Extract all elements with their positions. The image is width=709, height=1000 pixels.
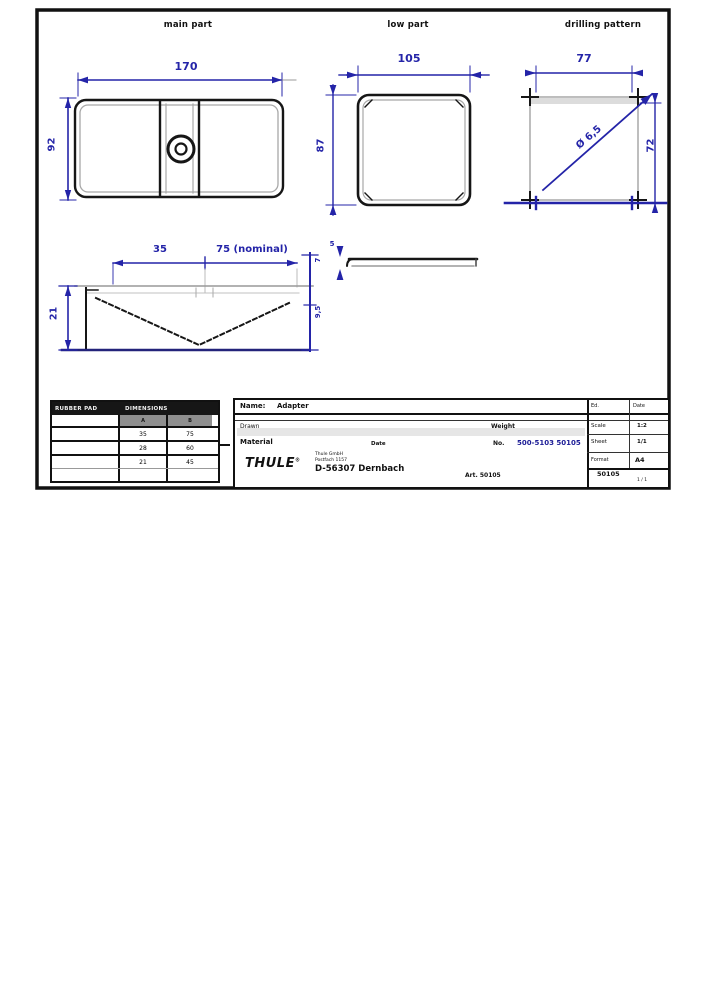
table-row <box>52 468 218 481</box>
view-main-part <box>60 73 296 200</box>
dim-pattern-width: 77 <box>566 52 602 65</box>
dim-main-height: 92 <box>47 131 58 159</box>
company-bold: D-56307 Dernbach <box>315 464 404 474</box>
table-cell: 35 <box>118 428 166 440</box>
table-cell <box>118 469 166 481</box>
table-cell <box>166 469 212 481</box>
table-cell: 28 <box>118 442 166 454</box>
material-label: Material <box>240 438 273 446</box>
date-label: Date <box>633 403 645 409</box>
parts-table: RUBBER PAD DIMENSIONS A B 35 75 28 60 21… <box>50 400 220 483</box>
table-cell: 45 <box>166 456 212 468</box>
sheet-label: Sheet <box>591 439 607 445</box>
parts-table-subheader: A B <box>52 415 218 426</box>
table-subheader-a: A <box>118 415 166 426</box>
view-label-low-part: low part <box>368 20 448 30</box>
table-leader-tick <box>218 444 230 446</box>
drawing-linework <box>0 0 709 1000</box>
view-low-part <box>326 66 489 215</box>
table-cell: 21 <box>118 456 166 468</box>
dim-profile-seg-a: 35 <box>146 244 174 255</box>
drawn-label: Drawn <box>240 423 259 430</box>
drawing-number: 500-5103 50105 <box>517 439 581 447</box>
dim-profile-right-top: 7 <box>314 253 322 267</box>
dim-low-height: 87 <box>316 133 327 159</box>
format-label: Format <box>591 457 609 463</box>
table-cell: 75 <box>166 428 212 440</box>
footer-left: Art. 50105 <box>465 472 501 479</box>
thule-logo: THULE® <box>245 456 300 471</box>
dim-profile-seg-b: 75 (nominal) <box>204 244 300 255</box>
table-subheader-b: B <box>166 415 212 426</box>
view-bar-profile <box>337 246 477 280</box>
format-value: A4 <box>635 456 645 464</box>
scale-label: Scale <box>591 423 606 429</box>
table-row: 28 60 <box>52 440 218 454</box>
dim-profile-height: 21 <box>49 302 60 326</box>
dim-low-width: 105 <box>388 52 430 65</box>
number-label: No. <box>493 440 504 447</box>
table-row: 35 75 <box>52 426 218 440</box>
company-line-1: Thule GmbH <box>315 452 343 457</box>
name-label: Name: <box>240 402 265 410</box>
dim-pattern-height: 72 <box>646 133 657 159</box>
brand-text: THULE <box>245 456 295 471</box>
drawing-sheet: main part low part drilling pattern 170 … <box>0 0 709 1000</box>
table-cell: 60 <box>166 442 212 454</box>
weight-label: Weight <box>491 423 515 430</box>
table-row: 21 45 <box>52 454 218 468</box>
view-label-main-part: main part <box>152 20 224 30</box>
parts-table-header: RUBBER PAD DIMENSIONS <box>52 402 218 415</box>
dim-bar-thickness: 5 <box>326 240 338 248</box>
company-line-2: Postfach 1157 <box>315 458 347 463</box>
scale-value: 1:2 <box>637 423 647 429</box>
footer-number: 50105 <box>597 470 620 478</box>
footer-page: 1 / 1 <box>637 478 647 483</box>
registered-mark: ® <box>295 458 301 464</box>
dim-profile-right-bottom: 9,5 <box>314 302 322 322</box>
dim-main-width: 170 <box>168 60 204 73</box>
view-side-profile <box>59 253 318 351</box>
table-header-dims: DIMENSIONS <box>121 406 218 412</box>
view-label-drilling-pattern: drilling pattern <box>548 20 658 30</box>
name-value: Adapter <box>277 402 309 410</box>
ed-label: Ed. <box>591 403 599 409</box>
table-header-item: RUBBER PAD <box>52 406 121 412</box>
sheet-value: 1/1 <box>637 439 647 445</box>
title-block: Name: Adapter Ed. Date Drawn Weight Mate… <box>233 398 670 489</box>
date2-label: Date <box>371 441 386 447</box>
